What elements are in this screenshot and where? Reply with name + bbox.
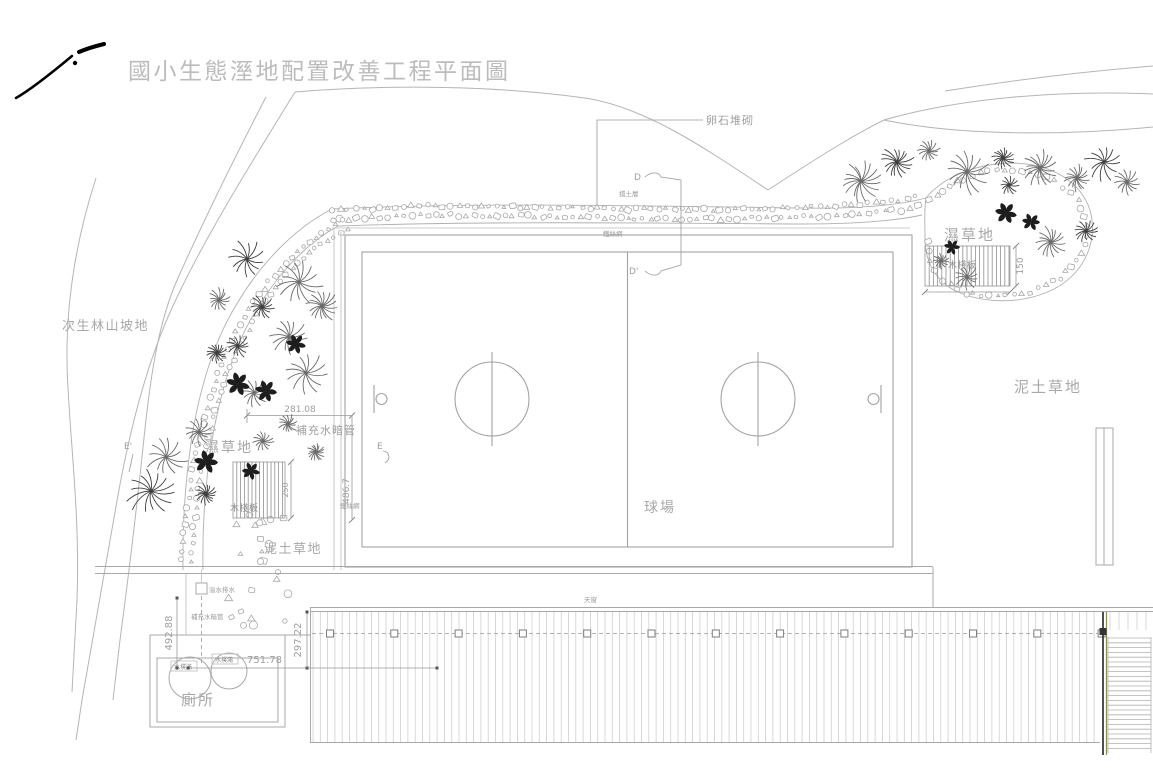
mud-grass-right-label: 泥土草地 <box>1014 378 1082 396</box>
dim-left-height: 486.7 <box>342 478 352 504</box>
ink-stroke-mark <box>16 44 104 98</box>
dim-deck-left: 250 <box>281 482 290 497</box>
water-tank-right-label: 水撲滿 <box>215 656 233 664</box>
dim-deck-right: 150 <box>1016 257 1026 274</box>
soil-layer-label: 擋土層 <box>619 189 639 198</box>
dim-canopy-vertical: 297.22 <box>293 623 304 658</box>
wet-grass-right-label: 濕草地 <box>944 226 995 244</box>
wire-mesh-left-label: 鐵絲網 <box>340 501 360 510</box>
wet-grass-left-label: 濕草地 <box>205 440 253 456</box>
canopy-columns <box>327 630 1106 637</box>
section-marker-e-prime: E' <box>124 442 132 452</box>
wire-mesh-top-label: 鐵絲網 <box>603 229 623 238</box>
hoop-left <box>376 394 387 405</box>
skylight-label: 天窗 <box>584 595 597 604</box>
terrain-contour-lines <box>67 66 1153 740</box>
dim-upper-width: 281.08 <box>284 405 316 415</box>
dim-tank-vertical: 492.88 <box>164 616 175 651</box>
stair-detail-right <box>1100 612 1152 755</box>
pebble-band-edges <box>183 163 1093 570</box>
pebble-stack-label: 卵石堆砌 <box>706 114 754 127</box>
section-marker-d-prime: D' <box>629 267 638 277</box>
section-markers: 卵石堆砌 D D' E E' <box>124 114 754 472</box>
overflow-drain-label: 溢水排水 <box>209 585 236 594</box>
ball-court-label: 球場 <box>644 500 676 516</box>
dimension-lines: 281.08 486.7 250 150 751.78 297.22 492.8… <box>164 243 1026 670</box>
wood-deck-right-label: 木棧板 <box>948 259 977 271</box>
hoop-right <box>868 394 879 405</box>
toilet-label: 廁所 <box>181 691 215 709</box>
secondary-forest-label: 次生林山坡地 <box>62 318 149 334</box>
mud-grass-left-label: 泥土草地 <box>264 542 322 557</box>
overflow-drain-box <box>196 583 207 594</box>
section-marker-d: D <box>634 173 641 183</box>
basketball-court <box>345 235 912 567</box>
wire-mesh-fence-lines <box>332 228 910 570</box>
dim-tank-horizontal: 751.78 <box>247 655 282 666</box>
right-wall-structure <box>1096 428 1113 565</box>
supply-pipe-upper-label: 補充水暗管 <box>296 423 356 437</box>
lower-boundary-lines <box>95 567 933 636</box>
supply-pipe-lower-label: 補充水暗管 <box>191 612 224 621</box>
page-title: 國小生態溼地配置改善工程平面圖 <box>128 59 511 85</box>
wood-deck-left-label: 木棧板 <box>230 502 259 514</box>
canopy-roof <box>310 607 1153 755</box>
roof-corrugation <box>313 612 1146 742</box>
site-plan-drawing: 國小生態溼地配置改善工程平面圖 <box>0 0 1153 771</box>
section-marker-e: E <box>377 442 383 452</box>
